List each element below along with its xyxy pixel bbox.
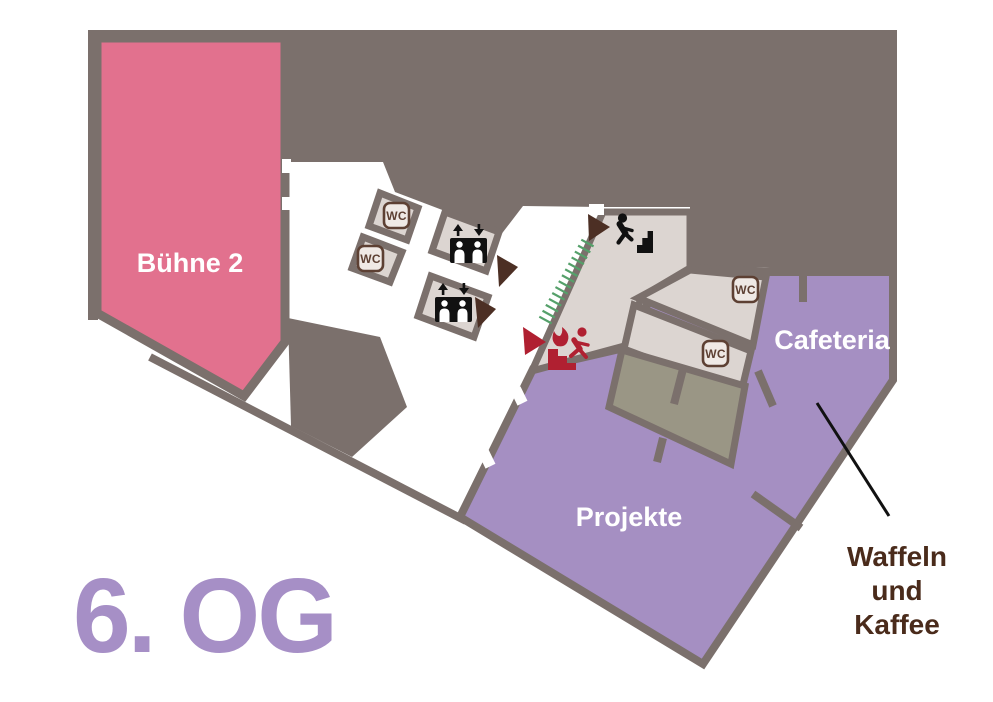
floor-plan-svg: WC WC WC WC Bühne 2 Cafeteria Projekte W… [0, 0, 993, 702]
svg-text:WC: WC [386, 209, 407, 223]
wc-icon: WC [384, 203, 409, 228]
wc-icon: WC [703, 341, 728, 366]
wc-icon: WC [733, 277, 758, 302]
door-gap [282, 197, 291, 210]
svg-text:WC: WC [705, 347, 726, 361]
floor-plan-page: WC WC WC WC Bühne 2 Cafeteria Projekte W… [0, 0, 993, 702]
floor-title: 6. OG [73, 557, 335, 675]
annotation-text-line1: Waffeln [847, 541, 947, 572]
label-buehne2: Bühne 2 [137, 248, 244, 278]
direction-triangle-icon [497, 255, 518, 287]
wall-stub-cafeteria [799, 272, 807, 302]
label-cafeteria: Cafeteria [774, 325, 891, 355]
svg-text:WC: WC [735, 283, 756, 297]
annotation-text-line2: und [871, 575, 922, 606]
room-buehne2 [97, 38, 285, 396]
wc-icon: WC [358, 246, 383, 271]
label-projekte: Projekte [576, 502, 683, 532]
annotation-text-line3: Kaffee [854, 609, 940, 640]
svg-text:WC: WC [360, 252, 381, 266]
door-gap [282, 159, 291, 173]
door-gap-stairwell [589, 204, 604, 215]
